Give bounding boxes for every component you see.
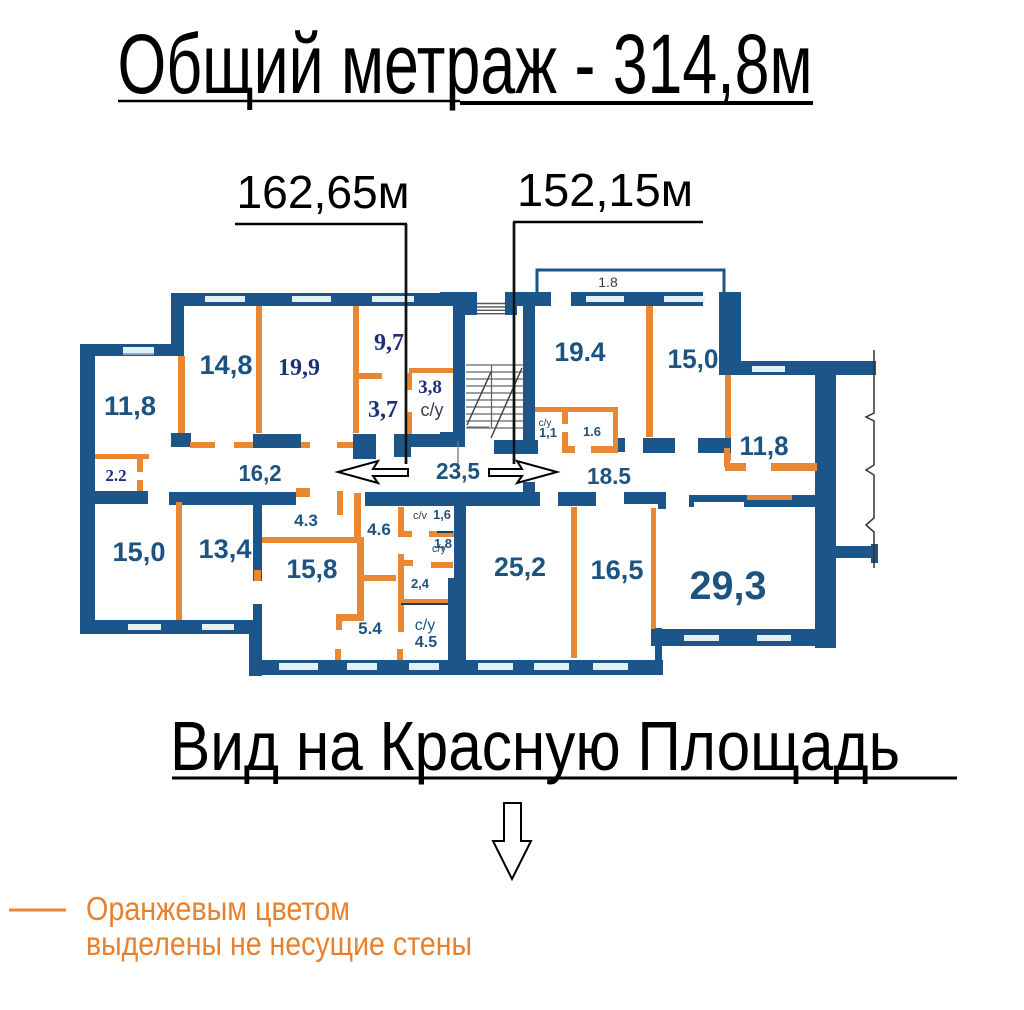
svg-text:29,3: 29,3 (690, 564, 767, 608)
svg-text:19.4: 19.4 (555, 337, 606, 367)
svg-text:с/у: с/у (420, 400, 443, 420)
svg-text:15,0: 15,0 (668, 344, 719, 374)
svg-text:1,6: 1,6 (433, 507, 451, 522)
svg-text:выделены не несущие стены: выделены не несущие стены (86, 925, 472, 962)
svg-text:с/у: с/у (415, 617, 435, 634)
svg-text:4.3: 4.3 (294, 511, 318, 530)
svg-text:15,8: 15,8 (287, 554, 338, 584)
svg-text:11,8: 11,8 (740, 431, 789, 461)
svg-text:16,2: 16,2 (239, 460, 282, 486)
svg-text:13,4: 13,4 (199, 534, 252, 564)
svg-text:1,1: 1,1 (539, 425, 557, 440)
svg-text:11,8: 11,8 (104, 391, 156, 421)
svg-text:14,8: 14,8 (200, 350, 253, 380)
svg-text:25,2: 25,2 (494, 552, 546, 582)
svg-text:15,0: 15,0 (113, 537, 166, 567)
svg-text:1.6: 1.6 (583, 424, 601, 439)
svg-text:Вид на Красную Площадь: Вид на Красную Площадь (170, 707, 900, 785)
svg-text:162,65м: 162,65м (237, 166, 410, 218)
svg-text:3,7: 3,7 (368, 397, 398, 423)
svg-text:16,5: 16,5 (591, 555, 644, 585)
svg-text:Оранжевым цветом: Оранжевым цветом (86, 890, 350, 927)
svg-text:152,15м: 152,15м (517, 164, 693, 216)
svg-text:1.8: 1.8 (598, 274, 618, 290)
svg-text:1,8: 1,8 (434, 536, 452, 551)
svg-text:5.4: 5.4 (358, 619, 382, 638)
svg-text:9,7: 9,7 (374, 330, 404, 356)
svg-text:18.5: 18.5 (587, 463, 631, 489)
svg-text:3,8: 3,8 (418, 377, 442, 398)
svg-text:2,4: 2,4 (411, 576, 430, 591)
svg-text:4.6: 4.6 (367, 520, 391, 539)
svg-text:с/v: с/v (413, 510, 428, 522)
svg-text:4.5: 4.5 (415, 634, 437, 651)
svg-text:2.2: 2.2 (105, 466, 126, 485)
svg-text:Общий метраж - 314,8м: Общий метраж - 314,8м (118, 17, 813, 111)
svg-text:19,9: 19,9 (278, 355, 320, 381)
svg-text:23,5: 23,5 (436, 458, 480, 484)
